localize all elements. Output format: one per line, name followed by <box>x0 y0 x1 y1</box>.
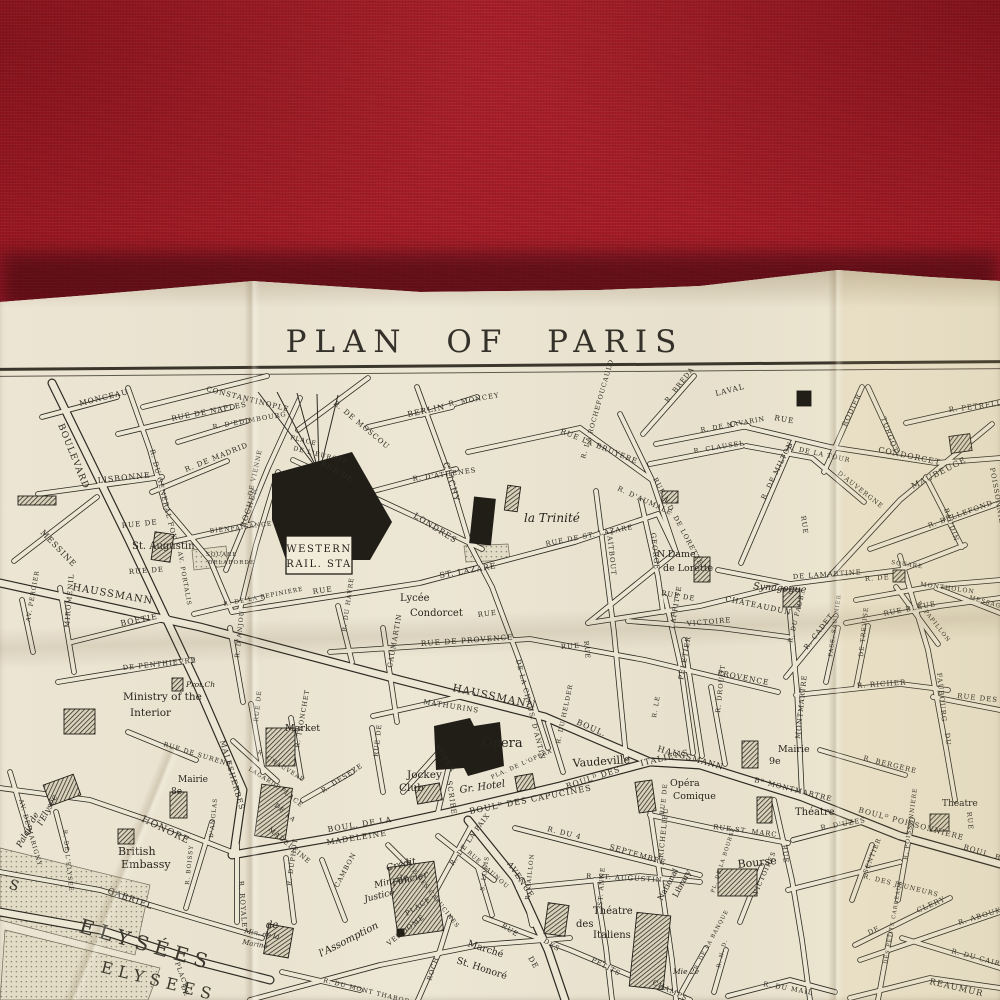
map-label: de Lorette <box>663 563 714 574</box>
map-label: Mie 2e <box>672 967 700 976</box>
map-label: Ministry of the <box>123 691 202 703</box>
building <box>742 741 758 768</box>
map-label: Club <box>399 782 424 794</box>
building <box>172 678 183 691</box>
map-label: SQUARE <box>206 552 237 558</box>
map-label: Jockey <box>406 769 442 781</box>
map-label: Justice <box>361 888 395 906</box>
map-label: MONCEAU <box>78 387 129 408</box>
map-label: Interior <box>130 707 172 719</box>
building <box>757 797 772 823</box>
map-label: Théatre <box>593 906 633 917</box>
building <box>797 391 811 406</box>
map-label: AV. PORTALIS <box>176 550 193 606</box>
building <box>470 497 496 545</box>
map-label: RUE DE <box>129 566 165 576</box>
map-label: D'ANGLAS <box>209 798 219 839</box>
photo-scene: PLAN OF PARIS WESTERNRAIL. STABOULEVARDM… <box>0 0 1000 1000</box>
building <box>635 780 656 813</box>
map-label: RUE <box>774 413 795 425</box>
building <box>544 903 569 937</box>
map-label: des <box>576 919 593 930</box>
map-label: RUE <box>500 922 520 939</box>
station-label: WESTERN <box>286 544 351 555</box>
map-label: 9e <box>769 756 781 767</box>
map-label: l'Assomption <box>317 920 380 959</box>
map-label: RUE DE ST. LAZARE <box>545 523 634 548</box>
map-label: Opera <box>482 736 523 751</box>
map-label: 8e <box>171 787 182 797</box>
map-label: ROCH <box>425 956 440 982</box>
map-label: St. Augustin <box>132 541 195 552</box>
map-label: R. MONCEY <box>448 391 500 408</box>
map-label: LONDRES <box>412 511 459 545</box>
map-label: R. BREDA <box>663 366 696 405</box>
building <box>18 496 56 505</box>
building <box>629 912 671 989</box>
station-label: RAIL. STA <box>286 559 351 570</box>
map-label: Gr. Hotel <box>459 779 506 796</box>
map-label: Italiens <box>593 930 631 941</box>
map-label: RUE <box>780 844 790 864</box>
paper-tint-right-panel <box>838 260 1000 1000</box>
building <box>515 774 535 792</box>
map-label: MESSINE <box>39 528 79 569</box>
map-label: Mairie <box>178 775 208 785</box>
map-label: AV. PERCIER <box>25 570 41 624</box>
map-label: R. DU HELDER <box>555 683 575 744</box>
map-label: RUE DE <box>121 517 158 530</box>
map-label: Mairie <box>778 744 810 755</box>
map-label: RUE <box>799 515 810 535</box>
map-label: la Trinité <box>524 511 580 525</box>
map-label: Opéra <box>670 778 700 789</box>
building <box>64 709 95 734</box>
map-label: R. DU MONT THABOR <box>323 977 411 1000</box>
map-label: DE <box>526 955 540 971</box>
building <box>504 485 520 512</box>
map-label: R. TRONCHET <box>293 689 311 749</box>
map-label: ST. ANNE <box>597 867 607 907</box>
map-label: R. DE MADRID <box>183 440 249 474</box>
map-label: R. LE <box>651 695 662 718</box>
map-label: Prot.Ch <box>185 680 215 689</box>
map-label: R. DESEZE <box>320 762 365 795</box>
map-label: R. DROUOT <box>714 664 727 713</box>
map-label: Lycée <box>400 593 430 604</box>
map-label: LAVAL <box>714 382 745 398</box>
map-label: de <box>266 920 278 931</box>
map-label: N.Dame <box>657 549 696 560</box>
map-label: CAMBON <box>333 851 358 889</box>
map-label: Comique <box>673 791 716 802</box>
